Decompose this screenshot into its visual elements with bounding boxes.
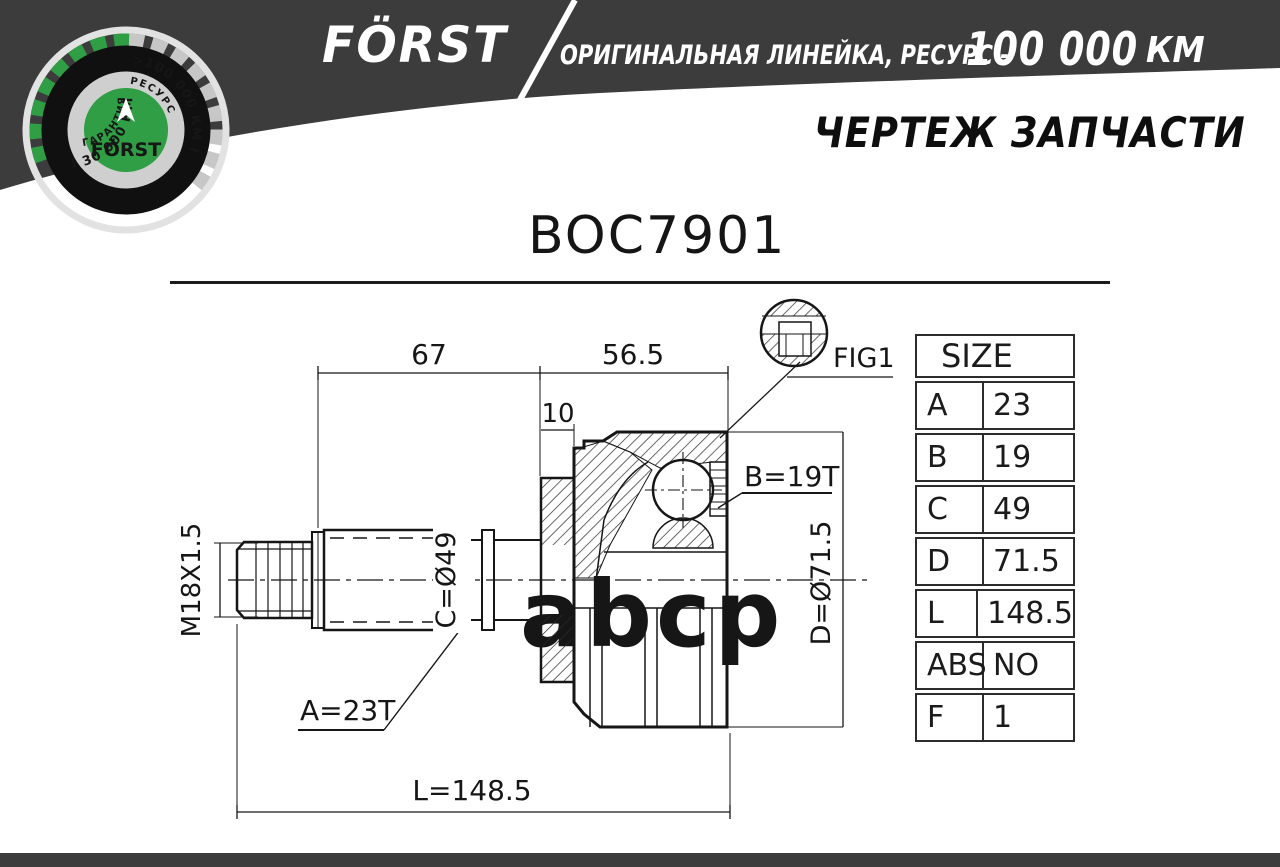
technical-drawing: abcp <box>0 0 1280 867</box>
cup-spline-label: B=19T <box>744 460 840 493</box>
length-label: L=148.5 <box>412 774 531 807</box>
row-value: 1 <box>984 695 1073 740</box>
table-row: L 148.5 <box>915 589 1075 638</box>
table-row: ABS NO <box>915 641 1075 690</box>
table-row: F 1 <box>915 693 1075 742</box>
row-key: F <box>917 695 984 740</box>
row-value: 148.5 <box>978 591 1073 636</box>
fig1-label: FIG1 <box>833 343 895 374</box>
table-row: B 19 <box>915 433 1075 482</box>
size-table-header: SIZE <box>915 334 1075 378</box>
table-row: D 71.5 <box>915 537 1075 586</box>
row-value: 19 <box>984 435 1073 480</box>
table-row: A 23 <box>915 381 1075 430</box>
dim-56-5-label: 56.5 <box>602 338 664 371</box>
page: FÖRST ОРИГИНАЛЬНАЯ ЛИНЕЙКА, РЕСУРС - 100… <box>0 0 1280 867</box>
shaft-spline-label: A=23T <box>300 694 396 727</box>
thread-spec-label: M18X1.5 <box>177 523 207 638</box>
dim-10-label: 10 <box>541 399 574 429</box>
row-value: NO <box>984 643 1073 688</box>
cup-diameter-label: D=Ø71.5 <box>806 521 837 646</box>
row-key: ABS <box>917 643 984 688</box>
row-key: C <box>917 487 984 532</box>
row-key: D <box>917 539 984 584</box>
size-table: SIZE A 23 B 19 C 49 D 71.5 L 148.5 ABS N… <box>915 334 1075 742</box>
row-key: L <box>917 591 978 636</box>
footer-bar <box>0 853 1280 867</box>
table-row: C 49 <box>915 485 1075 534</box>
row-key: A <box>917 383 984 428</box>
dim-67-label: 67 <box>411 338 447 371</box>
row-value: 23 <box>984 383 1073 428</box>
row-key: B <box>917 435 984 480</box>
row-value: 71.5 <box>984 539 1073 584</box>
row-value: 49 <box>984 487 1073 532</box>
shaft-diameter-label: C=Ø49 <box>431 531 462 628</box>
